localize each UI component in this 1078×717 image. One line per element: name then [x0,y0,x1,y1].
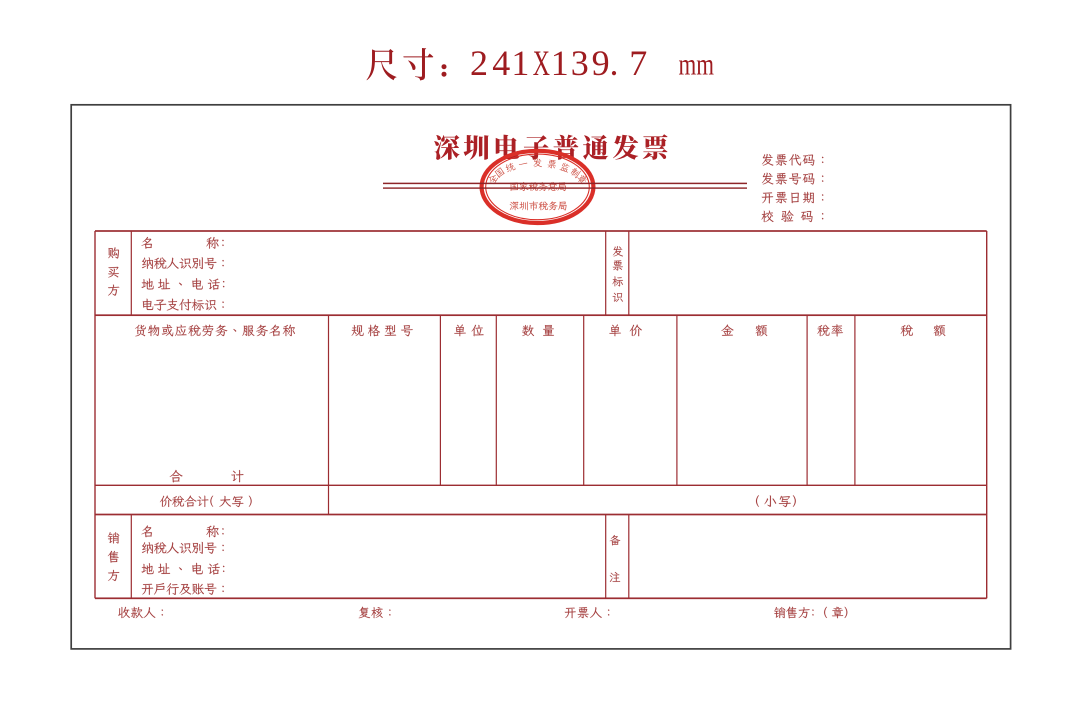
svg-text:139: 139 [551,43,610,83]
svg-text:mm: mm [679,46,715,81]
svg-text:X: X [533,43,550,83]
